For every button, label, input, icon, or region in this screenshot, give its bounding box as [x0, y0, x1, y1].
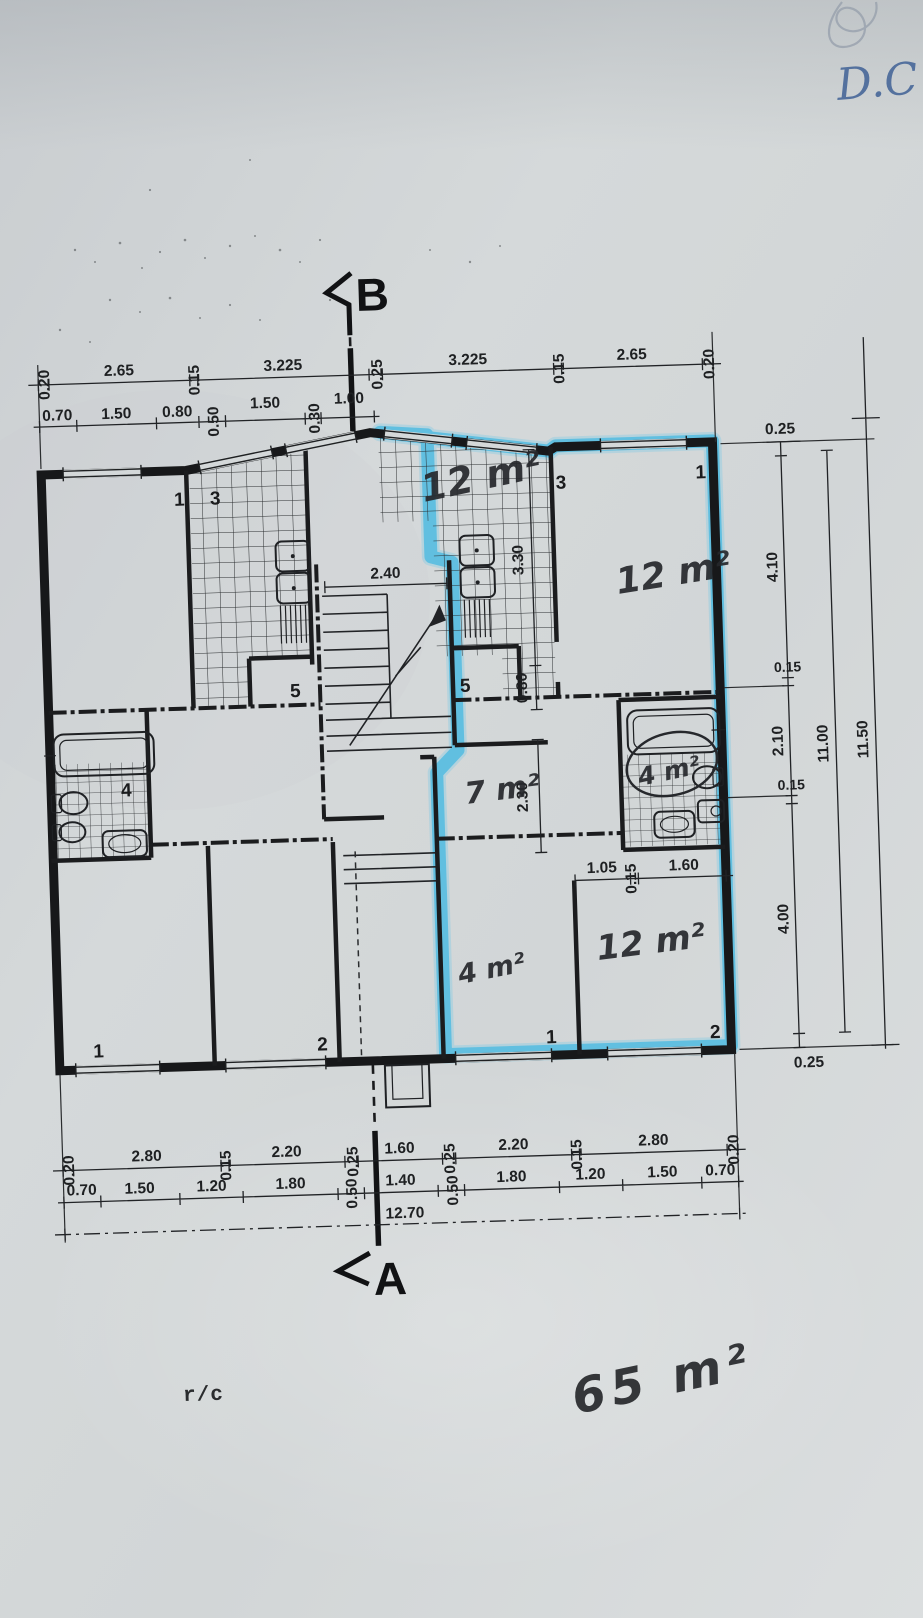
dim-label: 2.65	[616, 346, 647, 364]
dim-label: 0.20	[36, 370, 54, 401]
room-number: 5	[460, 676, 472, 697]
dim-label: 1.80	[275, 1175, 306, 1193]
dim-label: 2.20	[498, 1136, 529, 1154]
section-letter-b: B	[355, 268, 390, 321]
section-letter-a: A	[373, 1252, 408, 1305]
dim-label: 1.50	[124, 1180, 155, 1198]
room-number: 2	[317, 1034, 328, 1055]
dim-label: 0.25	[441, 1143, 459, 1174]
dim-label: 3.30	[510, 545, 528, 576]
room-number: 3	[555, 473, 566, 494]
dim-label: 0.80	[514, 673, 532, 704]
room-number: 1	[695, 462, 707, 483]
dim-label: 1.20	[575, 1166, 606, 1184]
room-number: 3	[210, 488, 221, 509]
dim-label: 0.25	[765, 420, 796, 438]
dim-label: 1.05	[586, 859, 617, 877]
dim-label: 1.50	[647, 1163, 678, 1181]
room-number: 1	[546, 1027, 558, 1048]
dim-label: 0.25	[794, 1054, 825, 1072]
dim-label: 2.65	[104, 362, 135, 380]
dim-label: 0.50	[444, 1175, 462, 1206]
dim-label: 1.60	[384, 1140, 415, 1158]
dim-label: 0.15	[623, 863, 641, 894]
dim-label-total: 11.00	[814, 724, 832, 762]
dim-label: 0.15	[568, 1139, 586, 1170]
dim-label: 3.225	[448, 351, 488, 369]
dim-label: 1.40	[385, 1172, 416, 1190]
dim-label: 0.80	[162, 403, 193, 421]
dim-label: 1.20	[196, 1178, 227, 1196]
dim-label: 1.00	[334, 390, 365, 408]
corner-initials: D.C	[834, 53, 921, 111]
dim-label: 4.10	[764, 552, 782, 583]
dim-label: 1.60	[668, 857, 699, 875]
room-number: 1	[174, 490, 186, 511]
dim-label: 0.20	[725, 1134, 743, 1165]
room-number: 5	[290, 681, 302, 702]
dim-label: 0.70	[42, 407, 73, 425]
dim-label: 0.70	[705, 1162, 736, 1180]
room-number: 1	[93, 1041, 105, 1062]
dim-label: 1.50	[101, 405, 132, 423]
dim-label: 0.30	[306, 403, 324, 434]
dim-label: 0.15	[551, 353, 569, 384]
dim-label: 0.50	[343, 1178, 361, 1209]
dim-label: 2.10	[769, 726, 787, 757]
dim-label: 3.225	[263, 357, 303, 375]
dim-label: 0.15	[186, 364, 204, 395]
dim-label: 1.80	[496, 1168, 527, 1186]
dim-label: 0.25	[369, 359, 387, 390]
dim-label: 2.40	[370, 565, 401, 583]
dim-label: 1.50	[250, 394, 281, 412]
room-number: 4	[121, 780, 133, 801]
floor-plan-drawing: 0.20 2.65 0.15 3.225 0.25 3.225 0.15 2.6…	[0, 0, 923, 1618]
dim-label: 2.20	[271, 1143, 302, 1161]
dim-label: 2.80	[131, 1148, 162, 1166]
dim-label: 0.50	[205, 406, 223, 437]
dim-label: 0.15	[774, 658, 802, 675]
dim-label: 0.20	[61, 1155, 79, 1186]
dim-label: 0.25	[344, 1146, 362, 1177]
dim-label: 0.15	[777, 776, 805, 793]
dim-label: 0.15	[217, 1150, 235, 1181]
room-number: 2	[710, 1022, 721, 1043]
dim-label-total: 12.70	[385, 1204, 424, 1222]
dim-label: 4.00	[775, 904, 793, 935]
dim-label: 0.70	[66, 1182, 97, 1200]
floor-label: r/c	[183, 1384, 225, 1408]
dim-label: 2.80	[638, 1132, 669, 1150]
dim-label: 0.20	[701, 349, 719, 380]
dim-label-total: 11.50	[854, 720, 872, 758]
floor-plan-photo: 0.20 2.65 0.15 3.225 0.25 3.225 0.15 2.6…	[0, 0, 923, 1618]
